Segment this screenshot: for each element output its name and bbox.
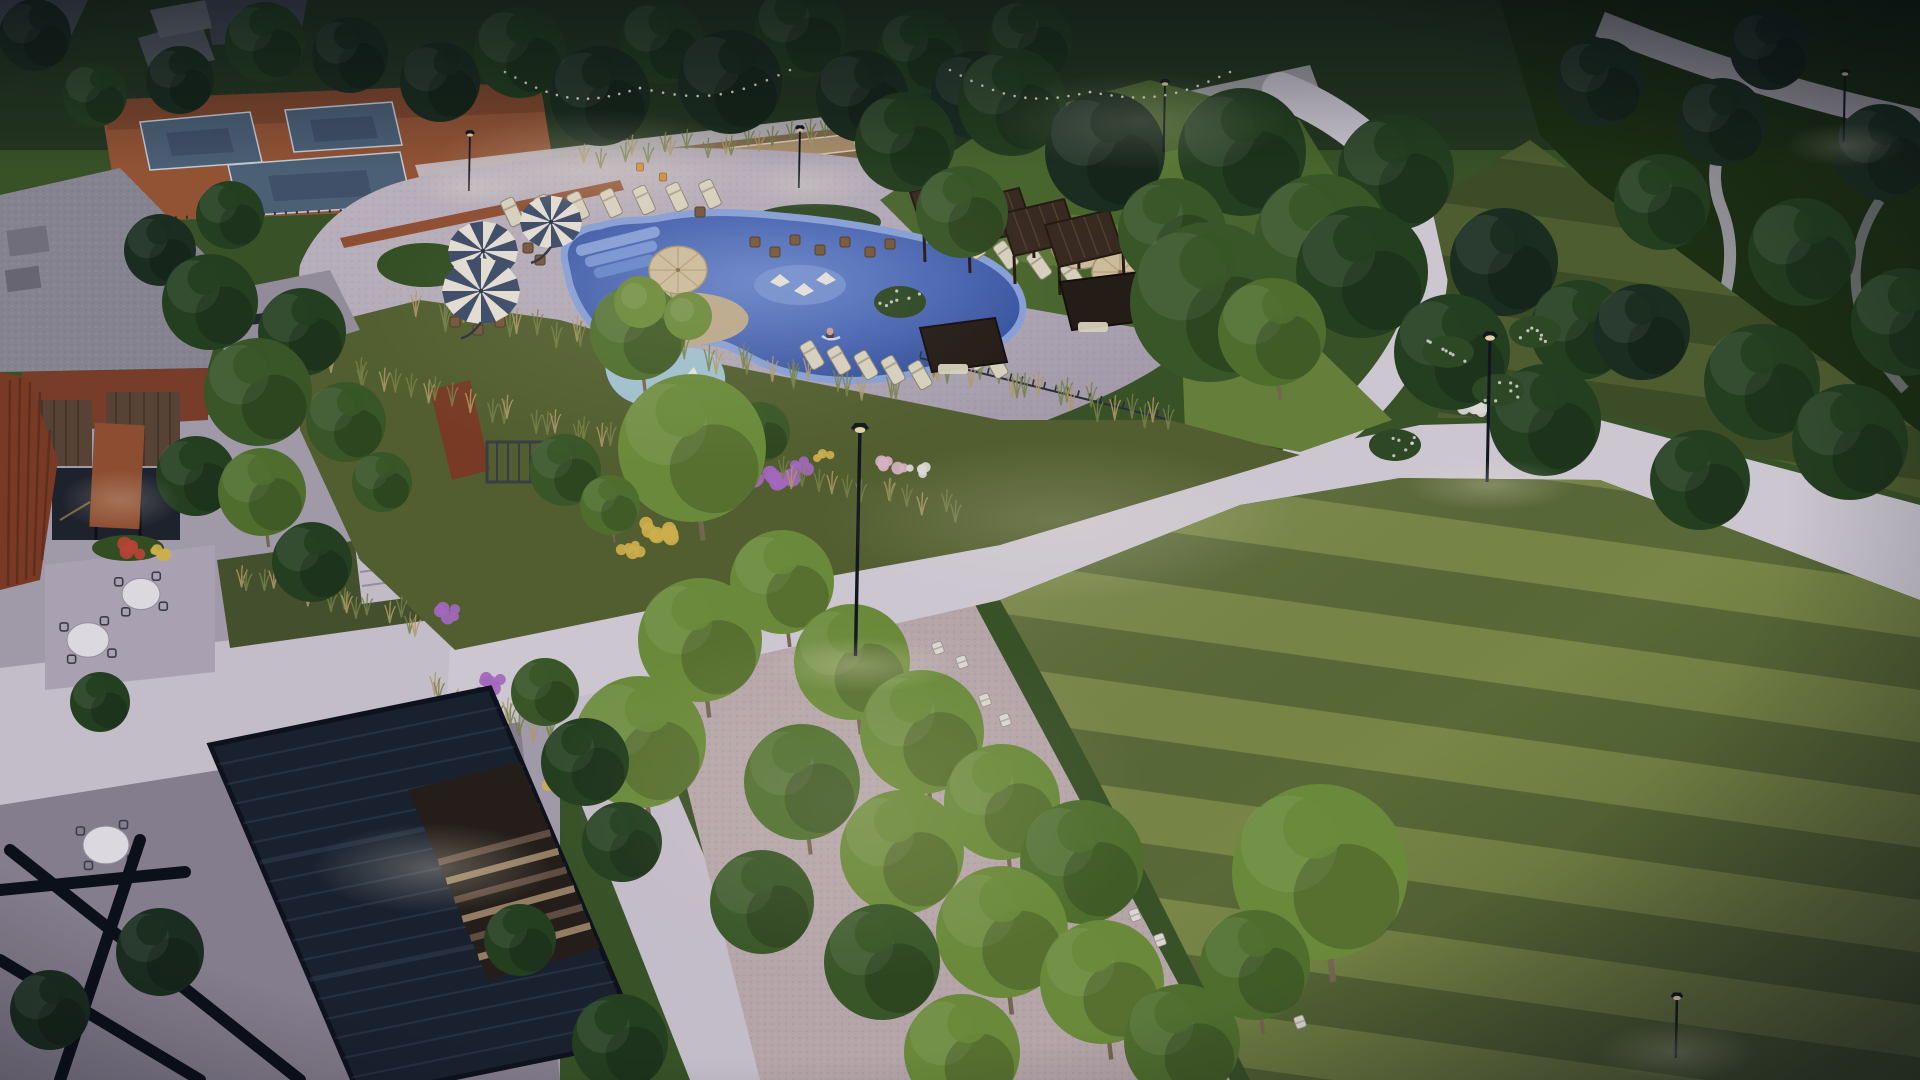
canopy-shadow [535,681,576,722]
flowering-bush [1369,429,1421,461]
canopy-lobe [561,725,592,756]
lamp-pole [799,128,800,188]
string-light-bulb [1186,88,1189,91]
canopy-lobe [1142,186,1180,224]
canopy-lobe [1530,372,1569,411]
bush [1509,316,1561,348]
canopy-lobe [943,173,975,205]
cafe-table [67,623,109,657]
canopy-lobe [86,677,107,698]
tree [582,802,662,882]
canopy-lobe [855,913,896,954]
canopy-shadow [85,85,123,123]
canopy-lobe [1262,286,1300,324]
canopy-shadow [1685,464,1745,524]
bush-bloom [1494,399,1497,402]
bush-bloom [890,300,893,303]
string-light-bulb [708,94,711,97]
bush-bloom [1449,352,1452,355]
string-light-bulb [992,89,995,92]
tree [10,970,90,1050]
bush-bloom [1526,329,1529,332]
bush-bloom [1519,336,1522,339]
canopy-lobe [90,68,112,90]
canopy-shadow [601,495,637,531]
rooftop-unit [6,225,49,256]
canopy-lobe [233,346,271,384]
tree [710,850,814,954]
bush-bloom [1515,385,1518,388]
string-light-bulb [766,79,769,82]
canopy-lobe [827,613,868,654]
canopy-shadow [948,197,1003,252]
canopy-lobe [136,915,167,946]
flower-cluster [436,602,449,615]
canopy-shadow [220,204,261,245]
canopy-lobe [506,13,538,45]
canopy-lobe [1755,16,1783,44]
canopy-lobe [1709,85,1740,116]
brick-pillar [89,423,144,529]
bush-bloom [1397,439,1400,442]
lamp-pole [1676,996,1677,1058]
side-table [695,207,705,217]
canopy-lobe [625,686,671,732]
cafe-table [83,826,129,864]
string-light-bulb [514,76,517,79]
bush-bloom [1509,389,1512,392]
canopy-post [1014,256,1015,284]
canopy-highlight [670,298,694,322]
canopy-lobe [656,385,708,437]
cafe-table-set [60,617,116,663]
flower-cluster [134,549,145,560]
canopy-shadow [509,928,552,971]
bush-bloom [1411,442,1414,445]
canopy-lobe [179,442,207,470]
orange-bistro-chair [660,173,667,181]
side-table [450,317,460,327]
string-light-bulb [1196,85,1199,88]
tree [541,718,629,806]
lamp-pole [1164,82,1165,152]
canopy-lobe [1283,797,1345,859]
canopy-lobe [763,538,799,574]
court-1 [140,112,262,170]
side-table [523,243,533,253]
person-head [827,329,833,335]
cabana-roof [920,318,1007,372]
canopy-lobe [169,51,193,75]
string-light-bulb [1110,94,1113,97]
canopy-shadow [785,763,855,833]
string-light-bulb [981,84,984,87]
string-light-bulb [587,97,590,100]
tree [225,2,305,82]
string-light-bulb [743,87,746,90]
canopy-lobe [529,663,553,687]
canopy-highlight [621,283,647,309]
flowering-bush [1422,336,1474,368]
flower-cluster [817,452,824,459]
canopy-shadow [714,65,776,127]
canopy-lobe [1579,45,1610,76]
bush-bloom [1463,360,1466,363]
canopy-shadow [147,938,200,991]
canopy-shadow [24,23,67,66]
canopy-lobe [39,976,67,1004]
bush-bloom [1530,326,1533,329]
tree [1678,78,1766,166]
tree [0,0,71,71]
canopy-shadow [1833,423,1903,493]
canopy-lobe [187,261,221,295]
flower-cluster [826,451,834,459]
canopy-post [1059,267,1060,295]
bush-bloom [1536,329,1539,332]
bush [874,286,926,318]
flowering-bush [874,286,926,318]
canopy-shadow [170,69,211,110]
canopy-lobe [671,587,714,630]
tree [70,672,130,732]
string-light-bulb [556,94,559,97]
string-light-bulb [576,97,579,100]
canopy-shadow [339,43,385,89]
tree [1792,384,1908,500]
canopy-lobe [249,8,277,36]
side-table [840,237,850,247]
canopy-shadow [242,375,307,440]
canopy-lobe [874,799,917,842]
tree [116,908,204,996]
island-tree [664,292,712,340]
cafe-table-set [115,572,168,616]
canopy-shadow [746,885,808,947]
bush-bloom [1539,337,1542,340]
canopy-lobe [581,54,616,89]
tree [1614,154,1710,250]
bush-bloom [895,299,898,302]
canopy-lobe [1675,438,1710,473]
flower-cluster [616,544,627,555]
bush-bloom [1429,341,1432,344]
bush-bloom [1540,334,1543,337]
string-light-bulb [628,90,631,93]
lamp-pole [1844,72,1845,142]
bush-bloom [1404,448,1407,451]
canopy-lobe [28,4,53,29]
canopy-lobe [1221,98,1266,143]
lamp-light [1485,335,1495,340]
canopy-shadow [196,287,254,345]
canopy-shadow [1256,315,1321,380]
string-light-bulb [754,83,757,86]
string-light-bulb [1078,93,1081,96]
canopy-lobe [218,186,242,210]
string-light-bulb [1164,94,1167,97]
lamp-light [855,427,866,433]
canopy-shadow [300,549,348,597]
string-light-bulb [1132,96,1135,99]
tree [196,181,264,249]
canopy-lobe [1868,111,1902,145]
string-light-bulb [608,95,611,98]
string-light-bulb [970,80,973,83]
canopy-lobe [337,388,365,416]
flower-cluster [626,546,640,560]
bush-bloom [1451,353,1454,356]
bush-bloom [918,292,921,295]
canopy-lobe [291,295,322,326]
canopy-shadow [1239,947,1305,1013]
canopy-lobe [1625,291,1659,325]
string-light-bulb [1207,80,1210,83]
canopy-lobe [1333,216,1379,262]
cabana-sofa [938,364,968,374]
string-light-bulb [1153,95,1156,98]
canopy-lobe [598,480,619,501]
tree [400,42,480,122]
bush-bloom [1516,395,1519,398]
canopy-shadow [1709,108,1762,161]
string-light-bulb [1035,97,1038,100]
side-table [885,239,895,249]
patio [45,545,215,690]
cafe-table [122,578,160,609]
canopy-lobe [741,858,777,894]
tree [162,254,258,350]
flower-cluster [920,462,930,472]
lamp-pole [469,133,470,191]
canopy-shadow [681,620,755,694]
canopy-lobe [854,57,886,89]
canopy-shadow [865,943,935,1013]
string-light-bulb [1175,91,1178,94]
string-light-bulb [1067,95,1070,98]
flower-cluster [649,527,665,543]
canopy-lobe [947,1003,988,1044]
side-table [815,245,825,255]
canopy-lobe [248,455,279,486]
bush-bloom [1445,349,1448,352]
tree [312,17,388,93]
canopy-shadow [334,409,382,457]
bush-bloom [1413,436,1416,439]
string-light-bulb [566,96,569,99]
canopy-lobe [1374,123,1415,164]
canopy-lobe [1058,809,1101,852]
canopy-shadow [1786,235,1851,300]
canopy-shadow [91,692,127,728]
string-light-bulb [618,93,621,96]
string-light-bulb [662,91,665,94]
tree [1748,198,1856,306]
canopy-lobe [1179,234,1235,290]
island-tree [614,276,666,328]
bush-bloom [895,289,898,292]
string-light-bulb [1089,91,1092,94]
tree [1730,10,1810,90]
side-table [865,247,875,257]
lamp-light [1162,82,1169,86]
flower-cluster [151,544,162,555]
string-light-bulb [673,93,676,96]
tree [550,46,650,146]
umbrella-hub [549,220,554,225]
side-table [770,247,780,257]
cabana-sofa [1078,322,1108,332]
lamp-light [467,133,473,136]
string-light-bulb [1024,96,1027,99]
string-light-bulb [1218,76,1221,79]
canopy-shadow [1758,37,1806,85]
bush-bloom [907,297,910,300]
bush-bloom [885,304,888,307]
canopy-shadow [373,472,409,508]
string-light-bulb [524,82,527,85]
string-light-bulb [959,74,962,77]
tree [1556,38,1644,126]
tree [1594,284,1690,380]
canopy-lobe [900,16,929,45]
tree [511,658,579,726]
orange-bistro-chair [637,163,644,171]
canopy-shadow [1294,844,1400,950]
canopy-lobe [1008,4,1037,33]
string-light-bulb [597,97,600,100]
string-light-bulb [1229,71,1232,74]
tree [306,382,386,462]
canopy-lobe [503,909,528,934]
canopy-shadow [249,478,302,531]
string-light-bulb [696,95,699,98]
string-light-bulb [545,90,548,93]
canopy-shadow [1063,842,1137,916]
canopy-lobe [772,733,813,774]
canopy-lobe [979,876,1025,922]
tree [204,338,312,446]
canopy-shadow [670,424,759,513]
flower-cluster [891,462,904,475]
canopy-lobe [1490,216,1528,254]
canopy-lobe [434,48,462,76]
bush [1472,374,1524,406]
lamp-light [797,128,803,131]
umbrella-hub [676,268,680,272]
string-light-bulb [789,69,792,72]
string-light-bulb [650,89,653,92]
flower-cluster [883,456,893,466]
canopy-shadow [1628,317,1686,375]
tree [146,46,214,114]
flower-cluster [450,604,460,614]
bush-bloom [1498,381,1501,384]
tanning-shelf [754,265,846,305]
bush-bloom [1509,381,1512,384]
lamp-light [1673,996,1681,1000]
canopy-shadow [1528,402,1595,469]
string-light-bulb [1056,96,1059,99]
flowering-bush [1472,374,1524,406]
flower-cluster [799,456,809,466]
canopy-lobe [884,100,919,135]
canopy-shadow [38,997,86,1045]
side-table [790,235,800,245]
canopy-lobe [547,439,572,464]
tree [272,522,352,602]
canopy-lobe [610,808,638,836]
canopy-lobe [594,1001,628,1035]
string-light-bulb [949,69,952,72]
canopy-lobe [1638,161,1672,195]
tree [1650,430,1750,530]
lamp-light [1842,72,1849,76]
canopy-shadow [585,80,645,140]
bush-bloom [878,302,881,305]
canopy-lobe [1741,333,1782,374]
canopy-lobe [992,56,1030,94]
canopy-lobe [1090,101,1132,143]
string-light-bulb [1013,95,1016,98]
string-light-bulb [719,93,722,96]
string-light-bulb [1121,95,1124,98]
tree [678,30,782,134]
canopy-lobe [1238,918,1277,957]
string-light-bulb [777,74,780,77]
canopy-lobe [972,753,1013,794]
string-light-bulb [1046,97,1049,100]
bush-bloom [1441,348,1444,351]
tree [63,63,127,127]
tree [484,904,556,976]
string-light-bulb [731,91,734,94]
flower-cluster [479,676,489,686]
string-light-bulb [1143,96,1146,99]
tree [352,452,412,512]
flower-cluster [772,473,789,490]
canopy-lobe [890,679,933,722]
string-light-bulb [504,71,507,74]
canopy-lobe [1072,929,1115,972]
bush-bloom [1544,340,1547,343]
canopy-lobe [718,38,754,74]
bush-bloom [1484,399,1487,402]
canopy-lobe [146,219,171,244]
canopy-lobe [304,528,332,556]
canopy-lobe [1794,206,1832,244]
string-light-bulb [1099,93,1102,96]
canopy-lobe [375,457,396,478]
canopy-lobe [334,23,361,50]
bush-bloom [1392,437,1395,440]
flower-cluster [906,464,913,471]
park-rendering [0,0,1920,1080]
canopy-shadow [620,721,699,800]
string-light-bulb [639,87,642,90]
flowering-bush [1509,316,1561,348]
side-table [750,237,760,247]
string-light-bulb [535,86,538,89]
tree [916,166,1008,258]
canopy-lobe [648,6,677,35]
canopy-shadow [1587,68,1640,121]
string-light-bulb [685,94,688,97]
string-light-bulb [1003,92,1006,95]
rooftop-unit [5,266,42,293]
canopy-shadow [572,748,625,801]
canopy-shadow [610,829,658,877]
